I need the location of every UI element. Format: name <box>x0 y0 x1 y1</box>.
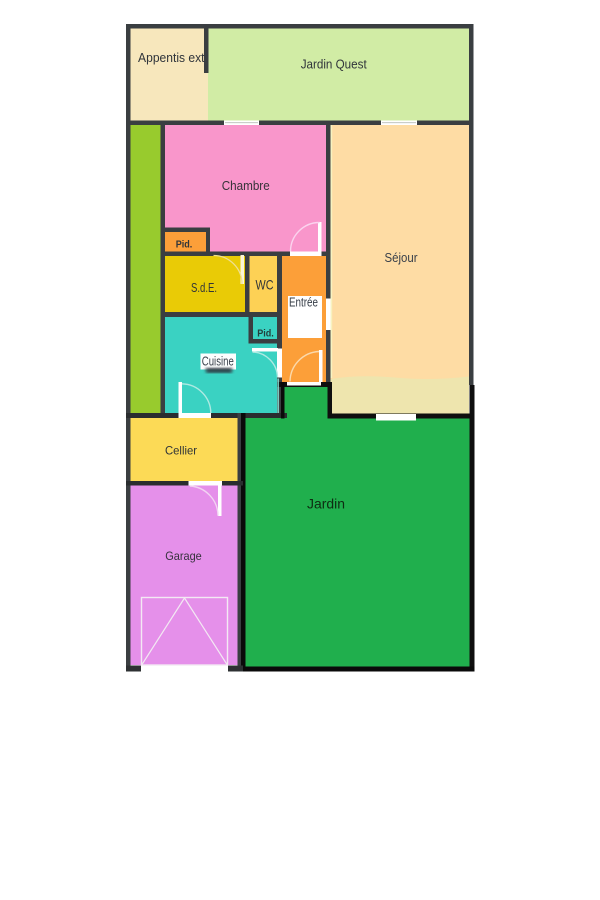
svg-text:Garage: Garage <box>165 549 202 563</box>
svg-text:Pid.: Pid. <box>176 238 193 250</box>
svg-text:Cellier: Cellier <box>165 444 197 458</box>
svg-text:Pid.: Pid. <box>257 328 274 340</box>
svg-text:Appentis ext: Appentis ext <box>138 51 205 65</box>
svg-text:WC: WC <box>256 277 274 293</box>
svg-text:Jardin: Jardin <box>307 496 345 512</box>
svg-text:Chambre: Chambre <box>222 178 270 193</box>
svg-text:S.d.E.: S.d.E. <box>191 281 217 295</box>
svg-text:Séjour: Séjour <box>385 250 419 265</box>
svg-text:Jardin Quest: Jardin Quest <box>301 57 367 72</box>
svg-text:Entrée: Entrée <box>289 296 318 310</box>
svg-text:Cuisine: Cuisine <box>202 354 234 369</box>
